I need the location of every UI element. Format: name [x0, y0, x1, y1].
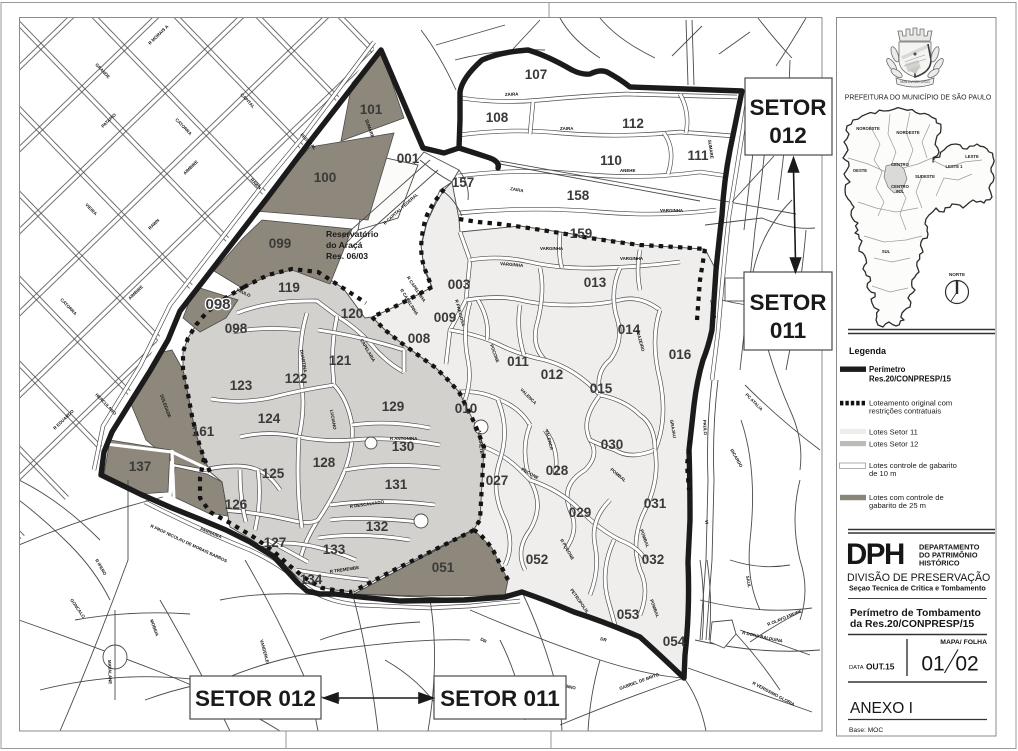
svg-text:027: 027	[486, 473, 509, 488]
svg-text:MAVALANE: MAVALANE	[107, 660, 113, 684]
svg-text:100: 100	[314, 170, 337, 185]
svg-text:123: 123	[230, 378, 253, 393]
svg-text:ZAIRA: ZAIRA	[560, 126, 574, 131]
svg-text:HISTÓRICO: HISTÓRICO	[919, 559, 960, 568]
svg-text:Seçao Tecnica de Critica e Tom: Seçao Tecnica de Critica e Tombamento	[849, 584, 986, 593]
svg-text:SUL: SUL	[882, 249, 891, 254]
svg-text:053: 053	[617, 607, 640, 622]
svg-text:ANEXO I: ANEXO I	[850, 700, 913, 717]
svg-text:da Res.20/CONPRESP/15: da Res.20/CONPRESP/15	[850, 619, 974, 630]
svg-text:029: 029	[569, 505, 592, 520]
svg-text:VARGINHA: VARGINHA	[660, 208, 684, 213]
svg-text:DIVISÃO DE PRESERVAÇÃO: DIVISÃO DE PRESERVAÇÃO	[847, 571, 990, 584]
svg-text:LESTE 1: LESTE 1	[946, 164, 964, 169]
svg-text:132: 132	[366, 519, 389, 534]
svg-text:101: 101	[360, 102, 383, 117]
svg-text:030: 030	[601, 437, 624, 452]
svg-text:SUDESTE: SUDESTE	[915, 174, 935, 179]
svg-text:013: 013	[584, 275, 607, 290]
svg-text:122: 122	[285, 371, 308, 386]
svg-text:098: 098	[205, 296, 230, 313]
svg-text:015: 015	[590, 381, 613, 396]
svg-text:de 10 m: de 10 m	[869, 469, 896, 478]
svg-text:gabarito de 25 m: gabarito de 25 m	[869, 501, 926, 510]
svg-text:Reservatório: Reservatório	[326, 229, 379, 239]
svg-text:161: 161	[192, 424, 215, 439]
svg-text:012: 012	[541, 367, 564, 382]
svg-text:SETOR: SETOR	[749, 290, 826, 315]
svg-text:098: 098	[225, 321, 248, 336]
svg-text:157: 157	[452, 175, 475, 190]
svg-text:137: 137	[129, 459, 152, 474]
svg-text:SETOR: SETOR	[749, 95, 826, 120]
svg-text:124: 124	[258, 411, 281, 426]
svg-text:Lotes Setor 11: Lotes Setor 11	[869, 428, 918, 437]
svg-text:restrições contratuais: restrições contratuais	[869, 407, 941, 416]
svg-text:MAPA/ FOLHA: MAPA/ FOLHA	[940, 639, 987, 646]
svg-text:131: 131	[385, 477, 408, 492]
svg-text:Perímetro de Tombamento: Perímetro de Tombamento	[850, 608, 981, 619]
svg-text:Res.20/CONPRESP/15: Res.20/CONPRESP/15	[869, 375, 952, 384]
svg-text:CENTRO: CENTRO	[891, 162, 909, 167]
svg-text:OUT.15: OUT.15	[866, 662, 895, 672]
svg-text:02: 02	[955, 653, 978, 676]
svg-text:031: 031	[644, 496, 667, 511]
svg-text:099: 099	[269, 236, 292, 251]
svg-text:LESTE: LESTE	[965, 154, 979, 159]
svg-text:126: 126	[225, 497, 248, 512]
svg-text:ANEHE: ANEHE	[620, 168, 635, 173]
svg-text:Lotes Setor 12: Lotes Setor 12	[869, 440, 918, 449]
svg-text:DPH: DPH	[846, 538, 904, 571]
svg-text:SETOR 011: SETOR 011	[440, 686, 560, 711]
svg-text:Res. 06/03: Res. 06/03	[326, 251, 368, 261]
svg-text:NOROESTE: NOROESTE	[856, 126, 880, 131]
svg-text:054: 054	[663, 634, 686, 649]
svg-text:VI: VI	[704, 520, 709, 524]
svg-text:SUL: SUL	[896, 189, 905, 194]
svg-text:130: 130	[392, 439, 415, 454]
svg-text:110: 110	[600, 153, 622, 168]
svg-text:158: 158	[567, 188, 590, 203]
svg-text:107: 107	[525, 67, 548, 82]
svg-text:Base: MOC: Base: MOC	[849, 727, 883, 734]
svg-text:003: 003	[448, 277, 471, 292]
svg-text:NORTE: NORTE	[949, 272, 965, 277]
svg-text:119: 119	[278, 280, 300, 295]
svg-text:Perímetro: Perímetro	[869, 365, 906, 374]
svg-text:016: 016	[669, 347, 692, 362]
svg-text:159: 159	[570, 226, 593, 241]
svg-text:129: 129	[382, 399, 405, 414]
svg-text:028: 028	[546, 463, 569, 478]
svg-text:125: 125	[262, 466, 285, 481]
svg-text:VARGINHA: VARGINHA	[620, 256, 644, 261]
svg-text:128: 128	[313, 455, 336, 470]
svg-text:111: 111	[687, 148, 709, 163]
svg-text:Legenda: Legenda	[849, 346, 887, 356]
svg-text:OESTE: OESTE	[853, 168, 867, 173]
svg-text:008: 008	[408, 331, 431, 346]
svg-text:SETOR 012: SETOR 012	[195, 686, 316, 711]
svg-text:108: 108	[486, 110, 509, 125]
svg-text:011: 011	[770, 318, 806, 343]
svg-text:NORDESTE: NORDESTE	[896, 130, 919, 135]
svg-text:009: 009	[434, 310, 457, 325]
svg-text:051: 051	[432, 560, 455, 575]
svg-text:133: 133	[323, 542, 346, 557]
svg-text:032: 032	[642, 552, 665, 567]
svg-text:PREFEITURA DO MUNICÍPIO DE SÃO: PREFEITURA DO MUNICÍPIO DE SÃO PAULO	[845, 93, 992, 102]
svg-text:011: 011	[507, 354, 529, 369]
svg-text:do Araçá: do Araçá	[326, 240, 363, 250]
svg-text:052: 052	[526, 552, 549, 567]
svg-text:112: 112	[622, 116, 644, 131]
svg-text:134: 134	[300, 572, 323, 587]
svg-text:NON DVCOR DVCO: NON DVCOR DVCO	[900, 80, 930, 84]
svg-text:012: 012	[769, 123, 807, 148]
svg-text:120: 120	[341, 306, 364, 321]
svg-text:DATA: DATA	[849, 665, 864, 671]
svg-text:R ANTONINA: R ANTONINA	[390, 436, 418, 441]
svg-text:127: 127	[264, 535, 287, 550]
svg-text:01: 01	[921, 653, 944, 676]
svg-text:121: 121	[329, 353, 352, 368]
svg-text:ZAIRA: ZAIRA	[505, 92, 519, 97]
svg-text:001: 001	[397, 151, 420, 166]
svg-text:010: 010	[455, 401, 478, 416]
svg-text:VARGINHA: VARGINHA	[540, 246, 564, 251]
